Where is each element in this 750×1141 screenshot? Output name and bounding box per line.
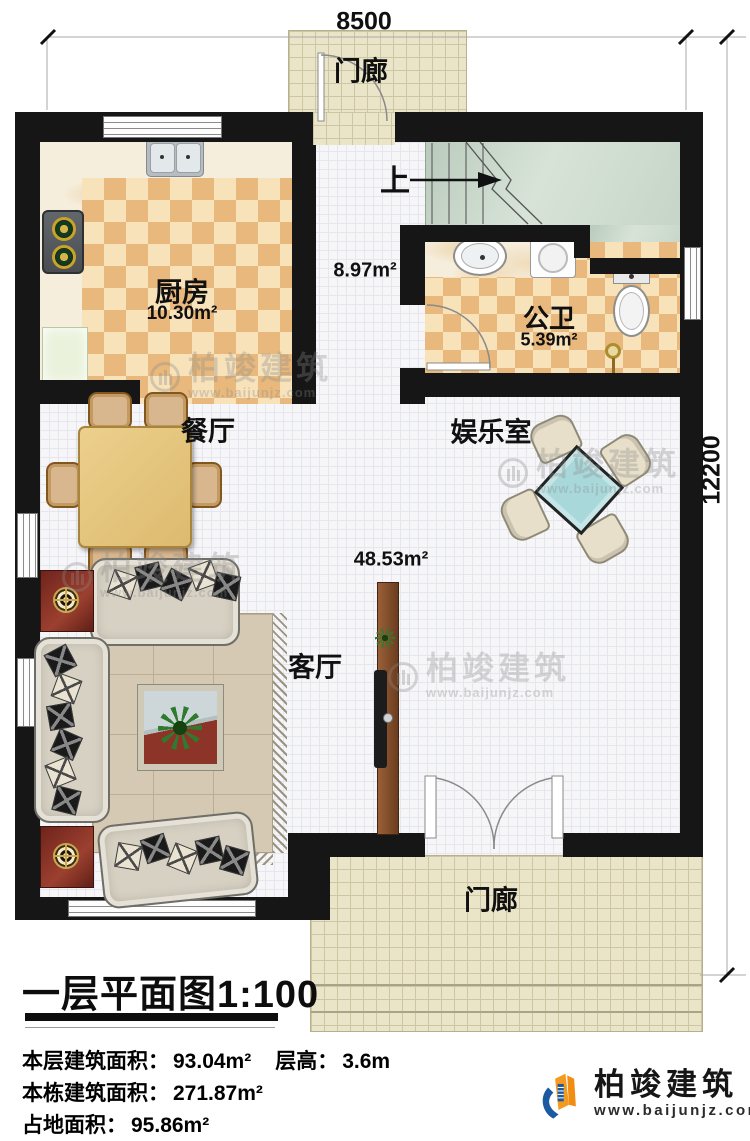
wall-bathroom-top <box>400 225 590 242</box>
watermark-logo-icon <box>388 662 418 692</box>
watermark: 柏竣建筑 www.baijunjz.com <box>498 448 680 498</box>
watermark: 柏竣建筑 www.baijunjz.com <box>150 352 332 402</box>
plant-icon <box>375 628 395 648</box>
room-area-living: 48.53m² <box>354 549 429 572</box>
building-area-value: 271.87m² <box>173 1082 263 1105</box>
info-line-building-area: 本栋建筑面积：271.87m² <box>22 1077 267 1107</box>
sofa-pillow <box>195 836 225 866</box>
room-label-porch-top: 门廊 <box>334 50 388 89</box>
company-logo: 柏竣建筑 www.baijunjz.com <box>536 1068 750 1126</box>
title-underline <box>25 1013 278 1021</box>
watermark-brand: 柏竣建筑 <box>536 448 680 480</box>
kitchen-window <box>103 116 222 138</box>
floor-area-value: 93.04m² <box>173 1050 251 1073</box>
compass-clock-icon <box>53 843 79 869</box>
building-area-label: 本栋建筑面积： <box>22 1082 169 1105</box>
watermark-logo-icon <box>150 362 180 392</box>
sofa-pillow <box>46 702 75 731</box>
land-area-value: 95.86m² <box>131 1114 209 1137</box>
wall-stairs-lower <box>590 258 680 274</box>
stairs-floor <box>425 142 681 225</box>
company-website: www.baijunjz.com <box>594 1102 750 1119</box>
room-area-hall: 8.97m² <box>333 260 396 283</box>
watermark-brand: 柏竣建筑 <box>426 652 570 684</box>
title-underline-thin <box>25 1027 275 1028</box>
watermark-url: www.baijunjz.com <box>536 480 680 498</box>
watermark-url: www.baijunjz.com <box>426 684 570 702</box>
dimension-height-label: 12200 <box>698 435 727 505</box>
wall-bottom-mid-right <box>563 833 703 857</box>
watermark-brand: 柏竣建筑 <box>188 352 332 384</box>
company-logo-icon <box>536 1068 588 1126</box>
wall-top-right <box>395 112 703 142</box>
bathroom-sink <box>453 236 507 276</box>
gas-stove <box>42 210 84 274</box>
porch-step-line <box>311 984 702 986</box>
watermark-logo-icon <box>498 458 528 488</box>
floor-height-value: 3.6m <box>342 1050 390 1073</box>
kitchen-cabinet <box>42 327 88 384</box>
carpet-fringe <box>273 613 287 853</box>
floor-plan: 柏竣建筑 www.baijunjz.com 柏竣建筑 www.baijunjz.… <box>0 0 750 1141</box>
dining-table <box>78 426 192 548</box>
watermark: 柏竣建筑 www.baijunjz.com <box>388 652 570 702</box>
left-window-1 <box>17 513 38 578</box>
wall-stairs-connector <box>574 225 590 258</box>
floor-height-label: 层高： <box>275 1050 338 1073</box>
info-line-land-area: 占地面积：95.86m² <box>22 1109 213 1139</box>
watermark-logo-icon <box>62 562 92 592</box>
watermark-url: www.baijunjz.com <box>100 584 244 602</box>
stairs-up-label: 上 <box>380 156 410 200</box>
floor-area-label: 本层建筑面积： <box>22 1050 169 1073</box>
company-name: 柏竣建筑 <box>594 1068 750 1102</box>
room-area-bathroom: 5.39m² <box>520 330 577 351</box>
watermark: 柏竣建筑 www.baijunjz.com <box>62 552 244 602</box>
room-label-porch-bottom: 门廊 <box>464 879 518 918</box>
room-area-kitchen: 10.30m² <box>147 303 218 325</box>
watermark-url: www.baijunjz.com <box>188 384 332 402</box>
tv-stand <box>383 713 393 723</box>
room-label-living: 客厅 <box>288 646 342 685</box>
room-label-entertainment: 娱乐室 <box>451 411 532 450</box>
dining-chair <box>46 462 82 508</box>
info-line-floor-area: 本层建筑面积：93.04m²层高：3.6m <box>22 1045 394 1075</box>
bathroom-window <box>684 247 701 320</box>
room-label-dining: 餐厅 <box>181 410 235 449</box>
floor-lamp-icon <box>605 343 621 359</box>
plan-title: 一层平面图1:100 <box>22 963 319 1018</box>
porch-step-line <box>311 1011 702 1013</box>
kitchen-sink <box>146 138 204 177</box>
watermark-brand: 柏竣建筑 <box>100 552 244 584</box>
dining-chair <box>88 392 132 430</box>
wall-bathroom-left-upper <box>400 242 425 305</box>
porch-entry-strip <box>313 112 395 145</box>
land-area-label: 占地面积： <box>22 1114 127 1137</box>
wall-bathroom-bottom <box>400 373 680 397</box>
plant-icon <box>158 706 202 750</box>
sofa-pillow <box>114 842 143 871</box>
dimension-width-label: 8500 <box>336 8 392 37</box>
